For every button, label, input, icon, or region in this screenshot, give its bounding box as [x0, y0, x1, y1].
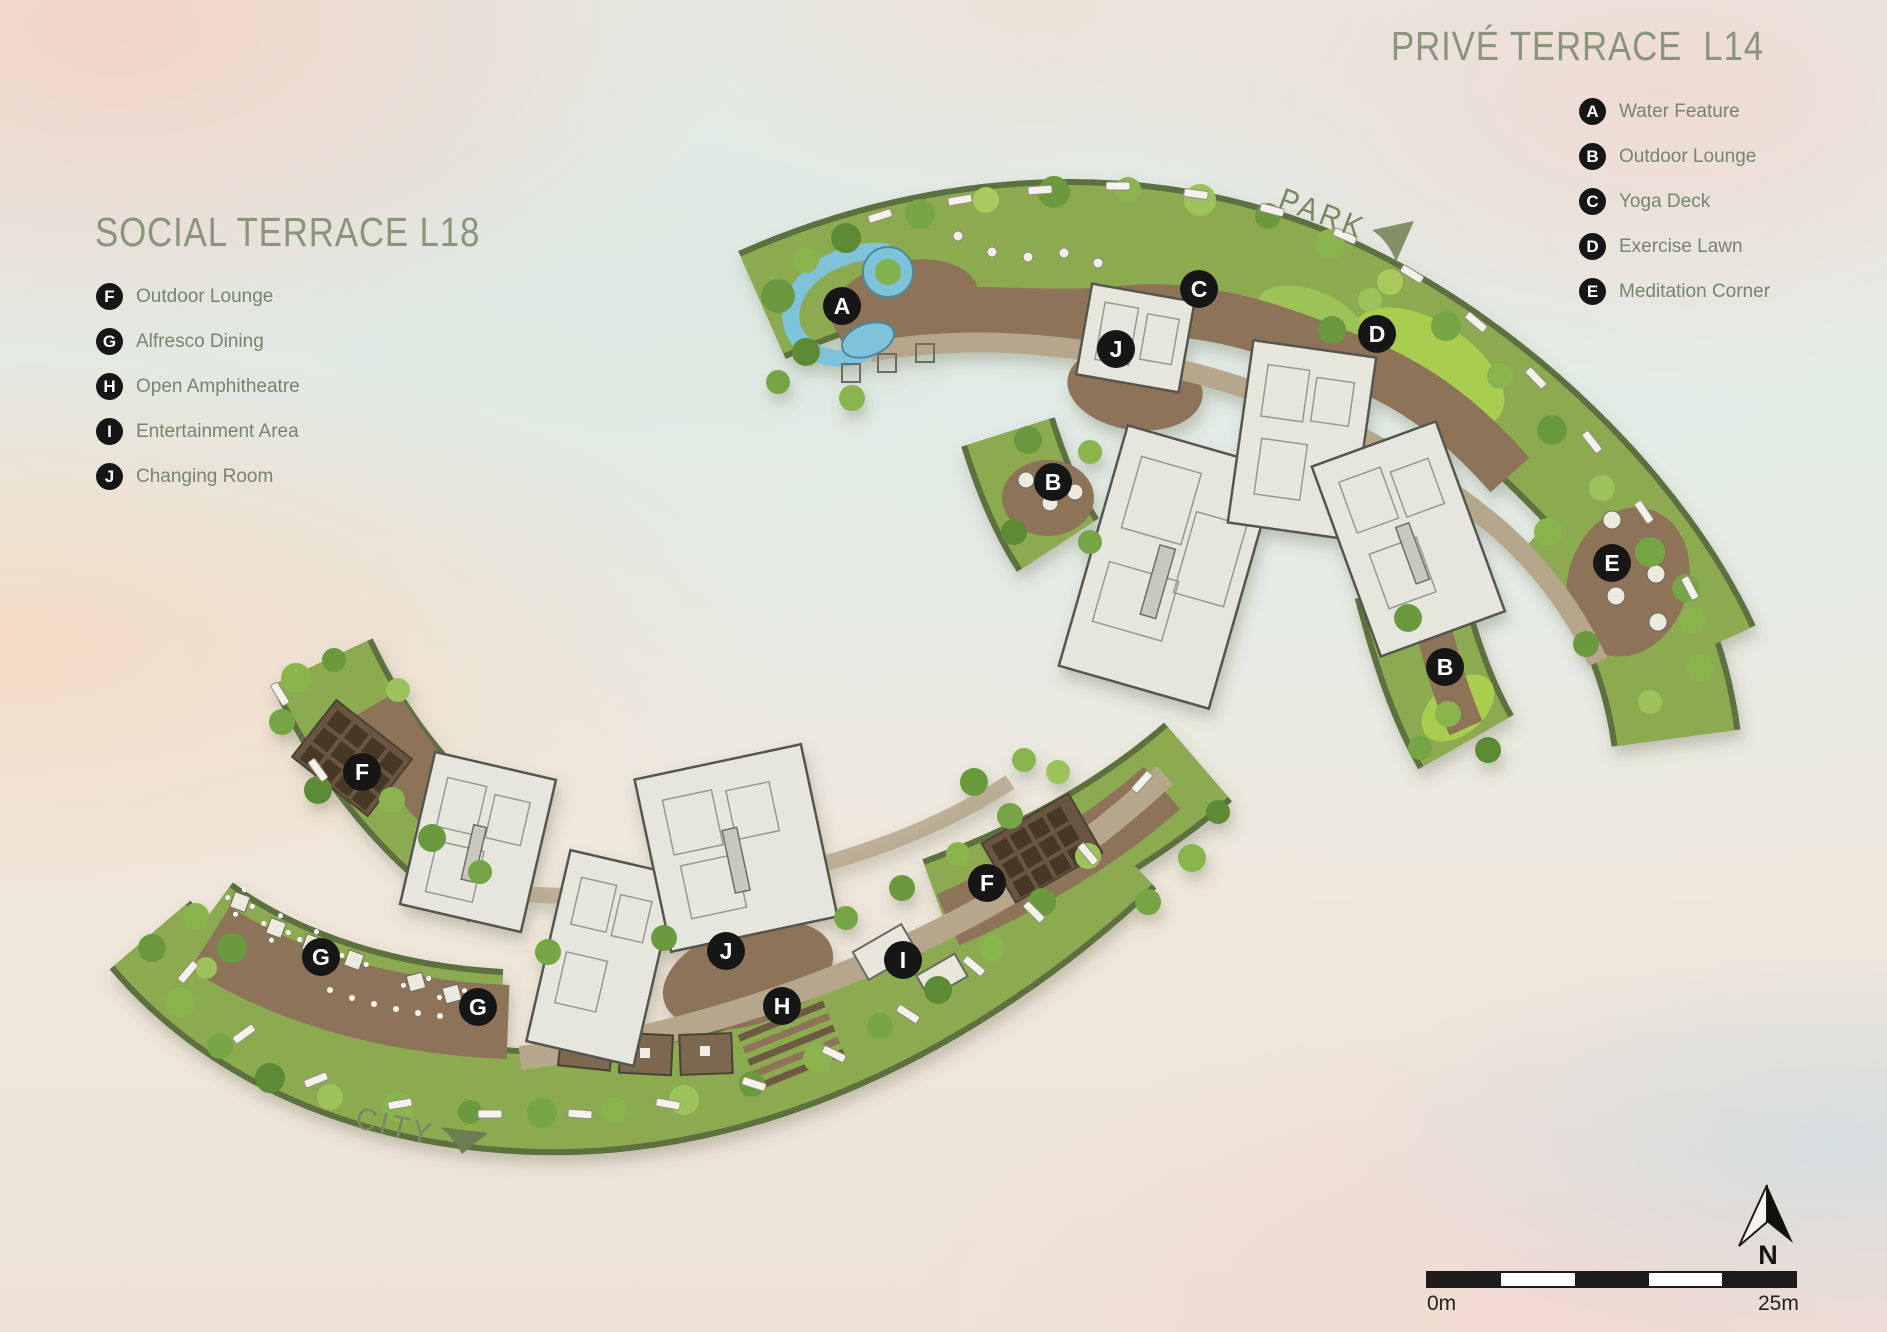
tree	[651, 925, 677, 951]
planter-bench	[568, 1109, 592, 1119]
prive-marker-e: E	[1593, 544, 1631, 582]
legend-item-label: Yoga Deck	[1619, 191, 1710, 213]
tree	[1487, 363, 1513, 389]
planter-bench	[1106, 182, 1130, 190]
deck-dot	[1023, 252, 1033, 262]
scale-bar	[1427, 1272, 1796, 1287]
tree	[1435, 701, 1461, 727]
tree	[761, 279, 795, 313]
legend-item-f: FOutdoor Lounge	[96, 283, 300, 310]
deck-dot	[327, 987, 333, 993]
tree	[1589, 475, 1615, 501]
tree	[1679, 607, 1705, 633]
tree	[867, 1013, 893, 1039]
table	[1647, 565, 1665, 583]
social-marker-f: F	[343, 753, 381, 791]
tree	[183, 903, 209, 929]
building	[635, 744, 838, 951]
tree	[527, 1098, 557, 1128]
deck-dot	[987, 247, 997, 257]
planter-bench	[1028, 185, 1052, 195]
legend-key-badge: E	[1579, 278, 1606, 305]
scale-end-label: 25m	[1758, 1292, 1799, 1316]
north-arrow-icon	[1739, 1185, 1793, 1246]
tree	[281, 663, 311, 693]
deck-dot	[953, 231, 963, 241]
tree	[207, 1033, 233, 1059]
tree	[1408, 736, 1432, 760]
table	[1603, 511, 1621, 529]
legend-social-terrace: FOutdoor LoungeGAlfresco DiningHOpen Amp…	[96, 283, 300, 508]
tree	[217, 933, 247, 963]
legend-item-i: IEntertainment Area	[96, 418, 300, 445]
deck-dot	[437, 1013, 443, 1019]
prive-marker-c: C	[1180, 270, 1218, 308]
tree	[379, 787, 405, 813]
tree	[905, 199, 935, 229]
tree	[1358, 288, 1382, 312]
tree	[1638, 690, 1662, 714]
legend-item-j: JChanging Room	[96, 463, 300, 490]
social-marker-j: J	[707, 932, 745, 970]
tree	[973, 187, 999, 213]
tree	[1206, 800, 1230, 824]
prive-marker-d: D	[1358, 315, 1396, 353]
tree	[195, 957, 217, 979]
tree	[793, 247, 819, 273]
tree	[317, 1084, 343, 1110]
legend-item-label: Changing Room	[136, 466, 273, 488]
legend-item-label: Water Feature	[1619, 101, 1740, 123]
legend-item-label: Alfresco Dining	[136, 331, 264, 353]
tree	[468, 860, 492, 884]
tree	[669, 1085, 699, 1115]
table	[1607, 587, 1625, 605]
tree	[792, 338, 820, 366]
tree	[386, 678, 410, 702]
site-plan-page: SOCIAL TERRACE L18 PRIVÉ TERRACE L14 AWa…	[0, 0, 1887, 1332]
deck-dot	[393, 1006, 399, 1012]
legend-key-badge: G	[96, 328, 123, 355]
legend-prive-terrace: AWater FeatureBOutdoor LoungeCYoga DeckD…	[1579, 98, 1770, 323]
scale-start-label: 0m	[1427, 1292, 1456, 1316]
legend-item-label: Meditation Corner	[1619, 281, 1770, 303]
tree	[1012, 748, 1036, 772]
legend-key-badge: H	[96, 373, 123, 400]
legend-item-label: Outdoor Lounge	[136, 286, 273, 308]
pond-island	[875, 259, 901, 285]
legend-item-e: EMeditation Corner	[1579, 278, 1770, 305]
tree	[304, 776, 332, 804]
tree	[1078, 440, 1102, 464]
tree	[535, 939, 561, 965]
legend-item-label: Exercise Lawn	[1619, 236, 1743, 258]
legend-key-badge: A	[1579, 98, 1606, 125]
social-marker-i: I	[884, 941, 922, 979]
tree	[138, 934, 166, 962]
social-marker-h: H	[763, 987, 801, 1025]
tree	[1687, 655, 1713, 681]
tree	[1178, 844, 1206, 872]
tree	[960, 768, 988, 796]
legend-key-badge: I	[96, 418, 123, 445]
tree	[1001, 519, 1027, 545]
legend-item-b: BOutdoor Lounge	[1579, 143, 1770, 170]
legend-item-h: HOpen Amphitheatre	[96, 373, 300, 400]
tree	[889, 875, 915, 901]
tree	[1046, 760, 1070, 784]
tree	[834, 906, 858, 930]
deck-dot	[349, 995, 355, 1001]
prive-marker-j: J	[1097, 330, 1135, 368]
tree	[924, 976, 952, 1004]
planter-bench	[478, 1110, 502, 1118]
tree	[1537, 415, 1567, 445]
tree	[1573, 631, 1599, 657]
tree	[1635, 537, 1665, 567]
legend-item-a: AWater Feature	[1579, 98, 1770, 125]
deck-dot	[371, 1001, 377, 1007]
legend-key-badge: J	[96, 463, 123, 490]
social-terrace-plan	[138, 648, 1230, 1128]
table	[1018, 472, 1034, 488]
tree	[1475, 737, 1501, 763]
social-marker-g: G	[302, 938, 340, 976]
legend-key-badge: F	[96, 283, 123, 310]
prive-marker-b: B	[1426, 648, 1464, 686]
prive-terrace-title: PRIVÉ TERRACE L14	[1391, 26, 1764, 67]
tree	[601, 1097, 627, 1123]
north-label: N	[1748, 1240, 1788, 1271]
legend-item-g: GAlfresco Dining	[96, 328, 300, 355]
tree	[946, 842, 970, 866]
social-terrace-title: SOCIAL TERRACE L18	[95, 212, 480, 253]
social-marker-f: F	[968, 864, 1006, 902]
table	[1649, 613, 1667, 631]
social-marker-g: G	[459, 988, 497, 1026]
deck-dot	[1059, 248, 1069, 258]
legend-item-label: Open Amphitheatre	[136, 376, 300, 398]
tree	[831, 223, 861, 253]
tree	[979, 935, 1005, 961]
building	[1076, 284, 1194, 393]
prive-marker-a: A	[823, 287, 861, 325]
tree	[1377, 269, 1403, 295]
tree	[322, 648, 346, 672]
tree	[839, 385, 865, 411]
tree	[1534, 518, 1562, 546]
prive-terrace-plan	[761, 176, 1713, 763]
legend-item-c: CYoga Deck	[1579, 188, 1770, 215]
legend-item-label: Entertainment Area	[136, 421, 299, 443]
tree	[1394, 604, 1422, 632]
tree	[1135, 889, 1161, 915]
tree	[255, 1063, 285, 1093]
tree	[1014, 426, 1042, 454]
tree	[1431, 311, 1461, 341]
legend-key-badge: D	[1579, 233, 1606, 260]
prive-marker-b: B	[1034, 463, 1072, 501]
tree	[269, 709, 295, 735]
tree	[997, 803, 1023, 829]
tree	[165, 987, 195, 1017]
legend-key-badge: C	[1579, 188, 1606, 215]
tree	[1318, 316, 1346, 344]
deck-dot	[1093, 258, 1103, 268]
tree	[418, 824, 446, 852]
legend-key-badge: B	[1579, 143, 1606, 170]
legend-item-label: Outdoor Lounge	[1619, 146, 1756, 168]
deck-dot	[415, 1010, 421, 1016]
tree	[1078, 530, 1102, 554]
tree	[766, 370, 790, 394]
legend-item-d: DExercise Lawn	[1579, 233, 1770, 260]
